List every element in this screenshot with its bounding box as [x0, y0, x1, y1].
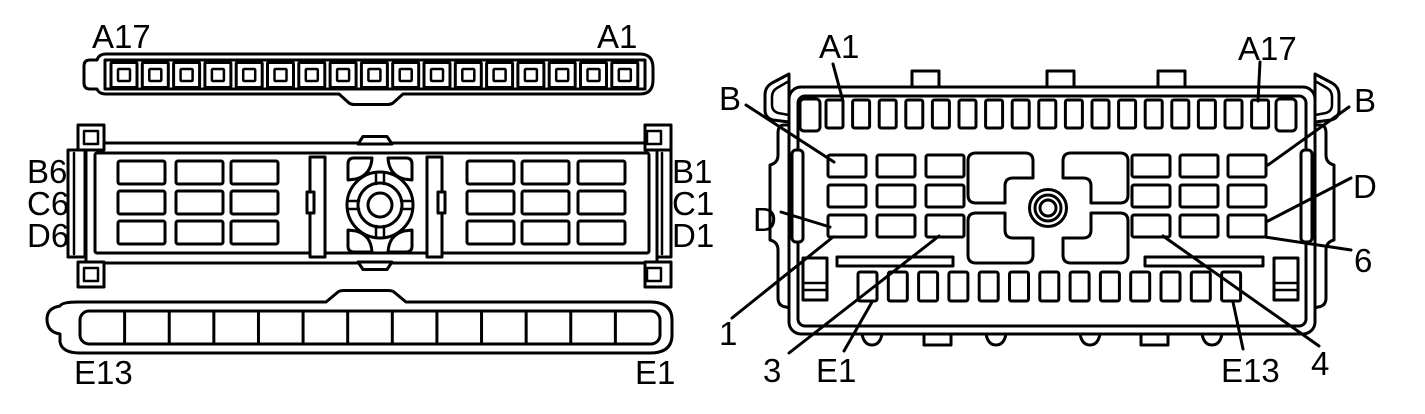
clip-top-left [78, 125, 104, 150]
label-rear-b-right: B [1354, 82, 1376, 119]
label-face-a1: A1 [597, 18, 637, 55]
rear-edge-slot-left [792, 150, 803, 242]
label-face-a17: A17 [92, 18, 151, 55]
label-rear-col1: 1 [719, 315, 737, 352]
face-a-row-housing [84, 54, 653, 105]
label-rear-e13: E13 [1221, 352, 1280, 389]
label-rear-col3: 3 [763, 352, 781, 389]
bottom-bump-round-4 [1202, 334, 1222, 345]
bottom-bump-round-2 [986, 334, 1006, 345]
rear-boss-inner-circle [1040, 200, 1056, 216]
face-right-rail [657, 150, 671, 257]
label-rear-e1: E1 [816, 352, 856, 389]
top-bump-tab-2 [1047, 71, 1074, 88]
connector-pinout-figure: A17 A1 B6 C6 D6 B1 C1 D1 E13 E1 [0, 0, 1425, 414]
leader-a17 [1258, 62, 1260, 101]
label-rear-col4: 4 [1311, 345, 1329, 382]
face-top-tab [358, 137, 392, 145]
connector-diagram-canvas: A17 A1 B6 C6 D6 B1 C1 D1 E13 E1 [0, 0, 1425, 414]
label-rear-a1: A1 [819, 28, 859, 65]
label-face-d1: D1 [672, 217, 714, 254]
face-bottom-tab [358, 262, 392, 270]
keyway-bar-left-notch [307, 192, 314, 213]
clip-bottom-left [78, 262, 104, 287]
bottom-bump-round-3 [1080, 334, 1100, 345]
face-left-rail [68, 150, 85, 257]
keyway-bar-right-notch [438, 192, 445, 213]
top-bump-tab-1 [912, 71, 939, 88]
face-bcd-housing [68, 125, 671, 287]
label-face-e13: E13 [74, 354, 133, 391]
terminal-view: A1 A17 B B D D 1 3 4 6 E1 E13 [719, 28, 1425, 389]
rear-edge-slot-right [1301, 150, 1312, 242]
label-rear-b-left: B [719, 80, 741, 117]
top-bump-tab-3 [1158, 71, 1185, 88]
label-rear-d-right: D [1353, 168, 1377, 205]
label-rear-d-left: D [753, 201, 777, 238]
label-face-d6: D6 [27, 217, 69, 254]
label-rear-a17: A17 [1238, 30, 1297, 67]
right-side-step-profile [1315, 125, 1334, 308]
label-face-e1: E1 [635, 354, 675, 391]
boss-inner-circle [368, 193, 392, 217]
face-view: A17 A1 B6 C6 D6 B1 C1 D1 E13 E1 [27, 18, 714, 391]
clip-bottom-right [645, 262, 671, 287]
label-rear-col6: 6 [1354, 242, 1372, 279]
clip-top-right [645, 125, 671, 150]
bottom-bump-round-1c [862, 334, 882, 345]
face-e-row-housing [47, 291, 672, 354]
